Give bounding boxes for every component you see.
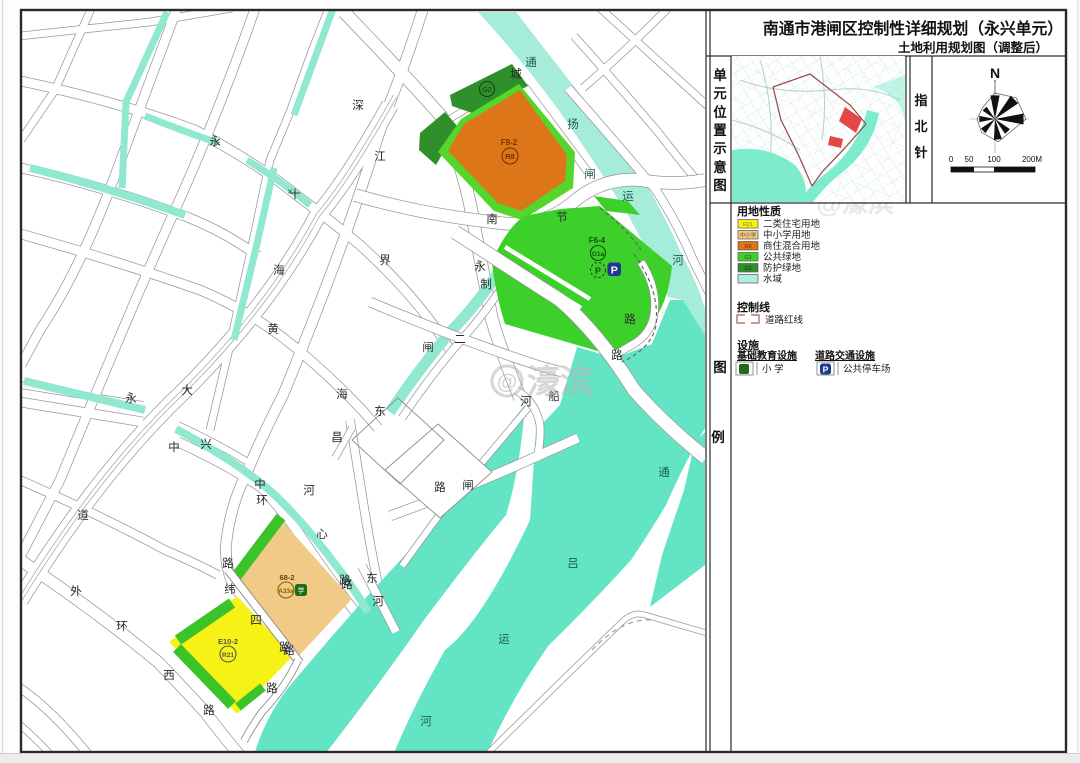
svg-text:E10-2: E10-2 bbox=[218, 637, 238, 646]
svg-text:200M: 200M bbox=[1022, 155, 1042, 164]
svg-text:河: 河 bbox=[672, 254, 684, 267]
svg-text:路: 路 bbox=[203, 703, 215, 717]
svg-text:南通市港闸区控制性详细规划（永兴单元）: 南通市港闸区控制性详细规划（永兴单元） bbox=[763, 19, 1063, 38]
svg-text:图: 图 bbox=[713, 178, 727, 193]
svg-text:G1a: G1a bbox=[592, 251, 605, 258]
svg-text:西: 西 bbox=[163, 670, 175, 682]
svg-text:大: 大 bbox=[181, 383, 193, 397]
svg-text:F6-4: F6-4 bbox=[589, 236, 606, 245]
svg-text:吕: 吕 bbox=[567, 558, 579, 570]
svg-text:运: 运 bbox=[498, 633, 510, 646]
svg-text:示: 示 bbox=[713, 141, 727, 156]
svg-text:二: 二 bbox=[454, 334, 466, 346]
svg-text:道路红线: 道路红线 bbox=[765, 314, 804, 326]
svg-text:100: 100 bbox=[987, 155, 1001, 164]
svg-text:指: 指 bbox=[914, 93, 927, 108]
svg-text:制: 制 bbox=[480, 278, 492, 291]
svg-text:50: 50 bbox=[965, 155, 974, 164]
svg-text:R21: R21 bbox=[743, 222, 753, 228]
svg-text:路: 路 bbox=[283, 643, 295, 657]
svg-text:例: 例 bbox=[711, 429, 725, 445]
svg-text:纬: 纬 bbox=[224, 583, 236, 596]
svg-text:路: 路 bbox=[611, 348, 623, 362]
svg-text:心: 心 bbox=[316, 528, 328, 541]
svg-text:运: 运 bbox=[622, 190, 634, 203]
svg-text:图: 图 bbox=[713, 360, 727, 375]
svg-text:中: 中 bbox=[254, 478, 266, 491]
svg-text:R21: R21 bbox=[222, 652, 234, 659]
svg-text:河: 河 bbox=[372, 595, 384, 608]
svg-text:R8: R8 bbox=[744, 244, 751, 250]
svg-text:R8: R8 bbox=[505, 152, 515, 161]
svg-text:中: 中 bbox=[168, 441, 180, 454]
svg-text:0: 0 bbox=[949, 155, 954, 164]
svg-text:道: 道 bbox=[77, 508, 89, 522]
svg-text:十: 十 bbox=[289, 187, 301, 201]
svg-text:界: 界 bbox=[379, 254, 391, 267]
svg-text:兴: 兴 bbox=[200, 438, 212, 451]
svg-text:通: 通 bbox=[525, 56, 537, 69]
svg-text:G2: G2 bbox=[744, 266, 751, 272]
svg-text:意: 意 bbox=[713, 159, 727, 175]
svg-text:海: 海 bbox=[273, 263, 285, 277]
svg-text:昌: 昌 bbox=[331, 431, 343, 444]
svg-text:P: P bbox=[611, 265, 618, 277]
svg-text:N: N bbox=[990, 65, 1000, 81]
svg-text:四: 四 bbox=[250, 615, 262, 627]
svg-text:水域: 水域 bbox=[763, 273, 783, 285]
svg-text:路: 路 bbox=[434, 480, 446, 494]
svg-text:@: @ bbox=[497, 371, 517, 394]
svg-text:设施: 设施 bbox=[737, 338, 759, 352]
svg-text:东: 东 bbox=[366, 572, 378, 585]
svg-text:中小学用地: 中小学用地 bbox=[763, 229, 811, 241]
svg-text:南: 南 bbox=[486, 212, 498, 226]
svg-text:闸: 闸 bbox=[584, 168, 596, 181]
svg-text:公共停车场: 公共停车场 bbox=[843, 363, 891, 375]
svg-text:环: 环 bbox=[256, 495, 268, 507]
svg-text:江: 江 bbox=[374, 150, 386, 163]
svg-text:东: 东 bbox=[374, 405, 386, 418]
svg-text:黄: 黄 bbox=[267, 322, 279, 336]
svg-text:深: 深 bbox=[352, 98, 364, 112]
svg-text:河: 河 bbox=[303, 484, 315, 497]
svg-text:学: 学 bbox=[298, 586, 305, 595]
svg-text:城: 城 bbox=[510, 68, 522, 81]
svg-text:单: 单 bbox=[713, 67, 727, 83]
svg-text:G1: G1 bbox=[744, 255, 751, 261]
svg-text:基础教育设施: 基础教育设施 bbox=[736, 349, 797, 362]
svg-text:二类住宅用地: 二类住宅用地 bbox=[763, 218, 821, 230]
svg-text:永: 永 bbox=[125, 391, 137, 405]
svg-text:路: 路 bbox=[222, 556, 234, 570]
svg-text:控制线: 控制线 bbox=[737, 300, 770, 314]
svg-text:公共绿地: 公共绿地 bbox=[763, 251, 802, 263]
svg-text:A33a: A33a bbox=[278, 588, 294, 595]
svg-text:外: 外 bbox=[70, 585, 82, 598]
svg-text:路: 路 bbox=[341, 577, 353, 591]
svg-text:路: 路 bbox=[624, 312, 636, 326]
svg-text:闸: 闸 bbox=[462, 479, 474, 492]
svg-text:环: 环 bbox=[116, 621, 128, 633]
svg-text:北: 北 bbox=[914, 119, 927, 134]
svg-text:68-2: 68-2 bbox=[279, 573, 294, 582]
svg-text:防护绿地: 防护绿地 bbox=[763, 262, 802, 274]
svg-text:用地性质: 用地性质 bbox=[737, 204, 781, 218]
svg-text:扬: 扬 bbox=[567, 117, 579, 131]
svg-text:河: 河 bbox=[420, 715, 432, 728]
svg-text:元: 元 bbox=[713, 86, 727, 101]
svg-text:置: 置 bbox=[713, 123, 727, 138]
svg-text:G2: G2 bbox=[482, 87, 491, 94]
svg-text:土地利用规划图（调整后）: 土地利用规划图（调整后） bbox=[898, 40, 1048, 55]
svg-text:针: 针 bbox=[913, 145, 927, 160]
svg-text:商住混合用地: 商住混合用地 bbox=[763, 240, 821, 252]
svg-text:永: 永 bbox=[474, 259, 486, 273]
svg-text:永: 永 bbox=[209, 134, 221, 148]
svg-text:小 学: 小 学 bbox=[762, 363, 784, 375]
svg-text:F9-2: F9-2 bbox=[501, 138, 518, 147]
svg-text:濠滨: 濠滨 bbox=[527, 363, 593, 400]
svg-text:闸: 闸 bbox=[422, 341, 434, 354]
svg-text:通: 通 bbox=[658, 466, 670, 479]
svg-text:海: 海 bbox=[336, 387, 348, 401]
svg-text:P: P bbox=[595, 266, 601, 276]
svg-text:中小学: 中小学 bbox=[740, 231, 757, 239]
svg-text:P: P bbox=[823, 365, 829, 375]
svg-text:位: 位 bbox=[713, 104, 727, 120]
svg-text:路: 路 bbox=[266, 681, 278, 695]
svg-text:节: 节 bbox=[556, 211, 568, 224]
svg-text:道路交通设施: 道路交通设施 bbox=[815, 349, 875, 362]
